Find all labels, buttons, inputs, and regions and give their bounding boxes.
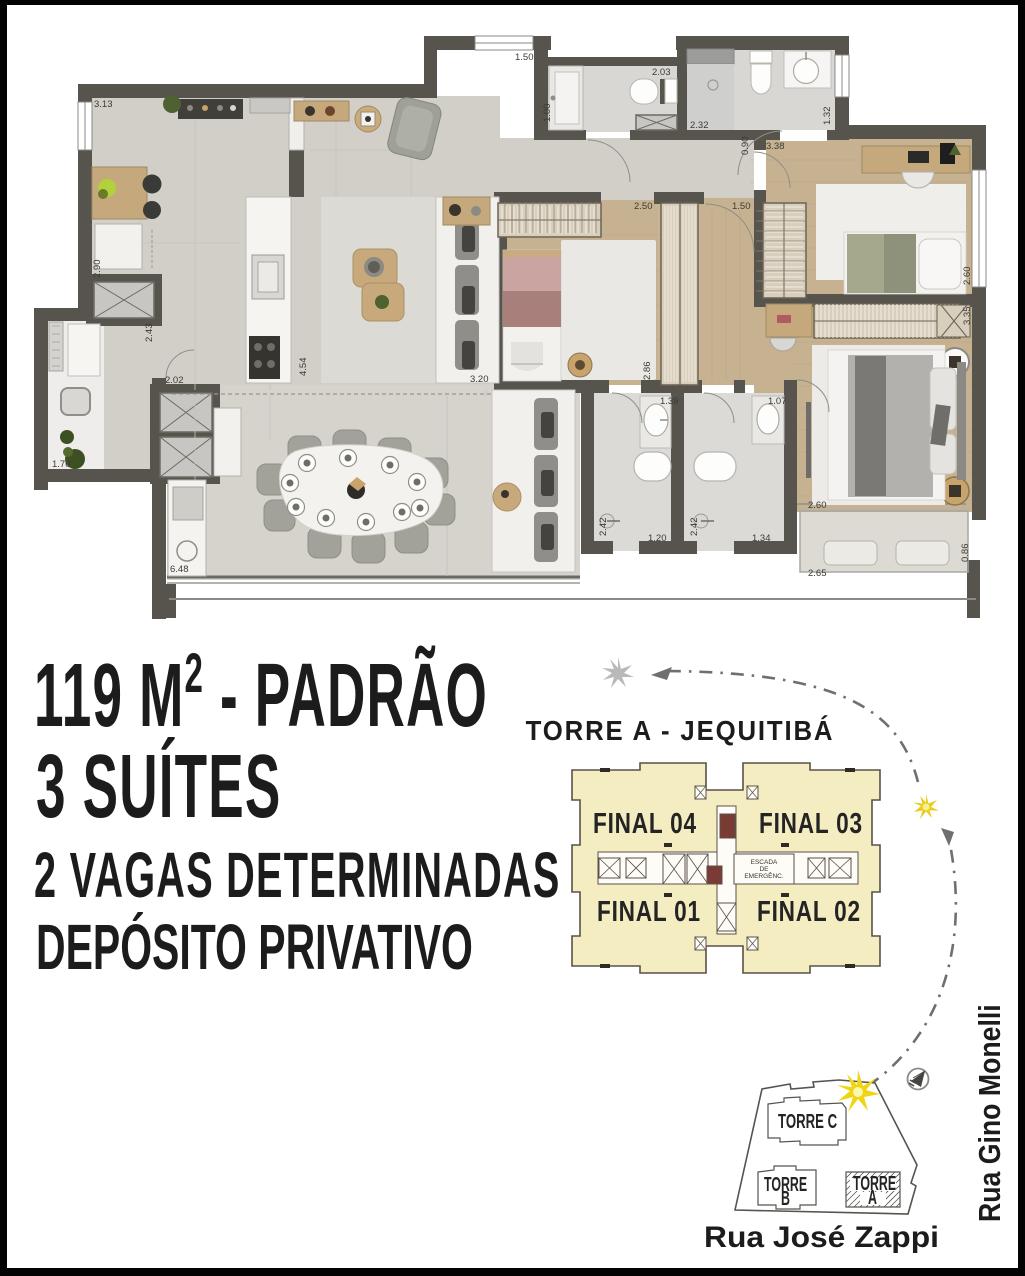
svg-text:FINAL 02: FINAL 02 bbox=[757, 894, 861, 927]
svg-text:ESCADA: ESCADA bbox=[751, 859, 778, 866]
svg-text:4.54: 4.54 bbox=[298, 358, 309, 377]
svg-text:A: A bbox=[868, 1186, 877, 1209]
svg-text:1.50: 1.50 bbox=[732, 201, 751, 212]
svg-text:3.35: 3.35 bbox=[962, 307, 973, 326]
svg-text:FINAL 03: FINAL 03 bbox=[759, 806, 863, 839]
svg-text:2.42: 2.42 bbox=[689, 518, 700, 537]
svg-text:1.32: 1.32 bbox=[822, 107, 833, 126]
svg-text:6.48: 6.48 bbox=[170, 564, 189, 575]
svg-text:1.20: 1.20 bbox=[648, 533, 667, 544]
svg-text:3.38: 3.38 bbox=[766, 141, 785, 152]
svg-text:2 VAGAS DETERMINADAS: 2 VAGAS DETERMINADAS bbox=[34, 841, 561, 912]
svg-text:2.02: 2.02 bbox=[165, 375, 184, 386]
svg-text:3.20: 3.20 bbox=[470, 374, 489, 385]
svg-text:TORRE C: TORRE C bbox=[778, 1110, 837, 1132]
svg-text:3 SUÍTES: 3 SUÍTES bbox=[36, 735, 281, 836]
svg-text:TORRE A - JEQUITIBÁ: TORRE A - JEQUITIBÁ bbox=[526, 714, 835, 746]
svg-text:FINAL 01: FINAL 01 bbox=[597, 894, 701, 927]
svg-text:119 M2 - PADRÃO: 119 M2 - PADRÃO bbox=[34, 641, 488, 746]
svg-text:Rua José Zappi: Rua José Zappi bbox=[704, 1220, 939, 1254]
svg-text:1.50: 1.50 bbox=[515, 52, 534, 63]
svg-text:2.32: 2.32 bbox=[690, 120, 709, 131]
svg-text:1.00: 1.00 bbox=[542, 104, 553, 123]
svg-text:1.07: 1.07 bbox=[768, 396, 787, 407]
svg-text:2.60: 2.60 bbox=[962, 267, 973, 286]
svg-text:B: B bbox=[781, 1187, 790, 1210]
svg-text:2.43: 2.43 bbox=[144, 324, 155, 343]
svg-text:1.39: 1.39 bbox=[660, 396, 679, 407]
svg-text:2.65: 2.65 bbox=[808, 568, 827, 579]
svg-text:2.42: 2.42 bbox=[598, 518, 609, 537]
svg-text:1.70: 1.70 bbox=[52, 459, 71, 470]
svg-text:FINAL 04: FINAL 04 bbox=[593, 806, 697, 839]
svg-text:DE: DE bbox=[759, 866, 769, 873]
svg-text:EMERGÊNC.: EMERGÊNC. bbox=[744, 871, 784, 880]
svg-text:2.60: 2.60 bbox=[808, 500, 827, 511]
svg-text:DEPÓSITO PRIVATIVO: DEPÓSITO PRIVATIVO bbox=[36, 912, 473, 983]
svg-text:2.50: 2.50 bbox=[634, 201, 653, 212]
svg-text:Rua Gino Monelli: Rua Gino Monelli bbox=[973, 1004, 1007, 1222]
svg-text:2.03: 2.03 bbox=[652, 67, 671, 78]
svg-text:3.13: 3.13 bbox=[94, 99, 113, 110]
svg-text:0.86: 0.86 bbox=[960, 544, 971, 563]
svg-text:1.34: 1.34 bbox=[752, 533, 771, 544]
svg-text:0.90: 0.90 bbox=[740, 137, 751, 156]
svg-text:2.86: 2.86 bbox=[642, 362, 653, 381]
svg-text:2.90: 2.90 bbox=[92, 260, 103, 279]
